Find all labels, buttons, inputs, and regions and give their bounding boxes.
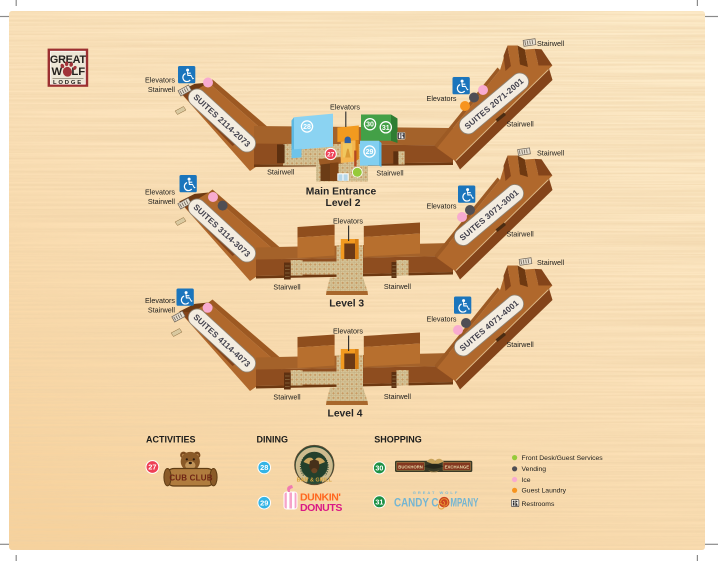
svg-text:Stairwell: Stairwell <box>537 39 565 48</box>
svg-text:Stairwell: Stairwell <box>384 282 412 291</box>
svg-text:Elevators: Elevators <box>333 217 363 226</box>
svg-text:LODGE: LODGE <box>53 80 83 86</box>
svg-text:ACTIVITIES: ACTIVITIES <box>146 435 196 445</box>
svg-text:Stairwell: Stairwell <box>537 148 565 157</box>
svg-text:Stairwell: Stairwell <box>537 258 565 267</box>
svg-text:Stairwell: Stairwell <box>267 168 295 177</box>
svg-text:Elevators: Elevators <box>427 94 457 103</box>
svg-text:27: 27 <box>327 151 335 158</box>
svg-text:Main Entrance: Main Entrance <box>306 187 377 198</box>
svg-text:29: 29 <box>260 498 268 507</box>
svg-text:Stairwell: Stairwell <box>507 120 535 129</box>
svg-text:28: 28 <box>260 463 268 472</box>
svg-text:Stairwell: Stairwell <box>376 169 404 178</box>
svg-text:DINING: DINING <box>257 435 289 445</box>
svg-text:Elevators: Elevators <box>145 76 175 85</box>
svg-text:Vending: Vending <box>522 466 547 473</box>
svg-text:Elevators: Elevators <box>145 296 175 305</box>
svg-text:31: 31 <box>375 497 383 506</box>
svg-text:SHOPPING: SHOPPING <box>374 435 422 445</box>
svg-text:Stairwell: Stairwell <box>273 283 301 292</box>
svg-text:Level 2: Level 2 <box>326 198 361 209</box>
svg-text:Level 4: Level 4 <box>328 409 363 420</box>
svg-text:30: 30 <box>375 463 383 472</box>
svg-text:Stairwell: Stairwell <box>148 197 176 206</box>
svg-text:CANDY C: CANDY C <box>394 496 439 510</box>
svg-text:CUB CLUB: CUB CLUB <box>169 474 212 483</box>
svg-text:29: 29 <box>366 149 374 156</box>
svg-text:Front Desk/Guest Services: Front Desk/Guest Services <box>522 455 604 462</box>
svg-text:31: 31 <box>382 125 390 132</box>
svg-text:Ice: Ice <box>522 477 531 484</box>
svg-text:Stairwell: Stairwell <box>273 393 301 402</box>
svg-text:Elevators: Elevators <box>333 327 363 336</box>
svg-text:Elevators: Elevators <box>427 315 457 324</box>
svg-text:Level 3: Level 3 <box>329 299 364 310</box>
svg-text:27: 27 <box>148 463 156 472</box>
svg-text:BUCKHORN: BUCKHORN <box>398 465 423 470</box>
svg-text:GREAT WOLF: GREAT WOLF <box>413 490 460 495</box>
svg-text:EXCHANGE: EXCHANGE <box>445 465 470 470</box>
svg-text:MPANY: MPANY <box>450 496 478 510</box>
svg-text:Stairwell: Stairwell <box>507 230 535 239</box>
svg-text:28: 28 <box>303 124 311 131</box>
svg-text:Elevators: Elevators <box>145 188 175 197</box>
svg-text:Elevators: Elevators <box>427 202 457 211</box>
svg-text:Restrooms: Restrooms <box>522 501 555 508</box>
svg-text:DONUTS: DONUTS <box>300 502 342 514</box>
svg-text:Guest Laundry: Guest Laundry <box>522 488 567 495</box>
svg-text:Stairwell: Stairwell <box>507 340 535 349</box>
svg-text:Elevators: Elevators <box>330 103 360 112</box>
svg-text:Stairwell: Stairwell <box>148 306 176 315</box>
svg-text:Stairwell: Stairwell <box>384 392 412 401</box>
svg-text:30: 30 <box>366 122 374 129</box>
svg-text:BAR & GRILL: BAR & GRILL <box>297 478 333 484</box>
svg-text:W: W <box>51 66 62 78</box>
svg-text:Stairwell: Stairwell <box>148 85 176 94</box>
